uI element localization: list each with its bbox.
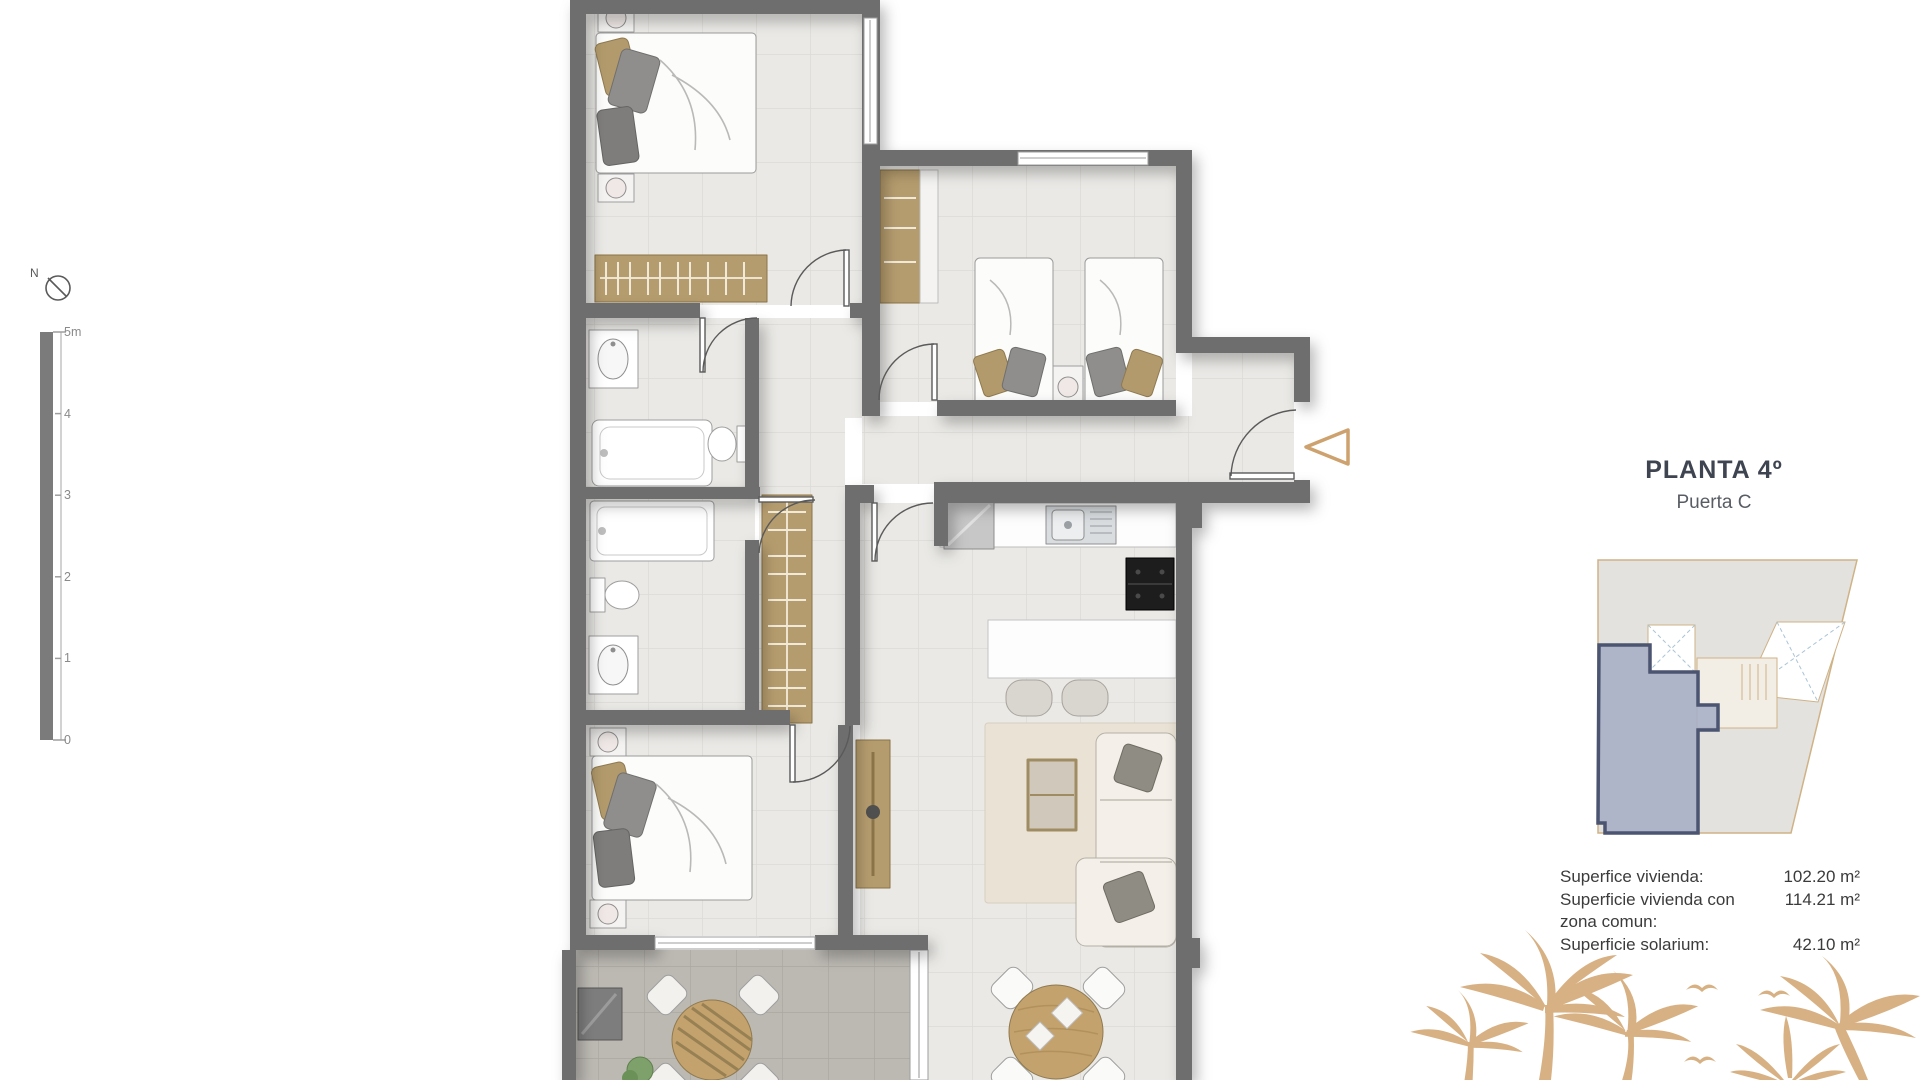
wall (815, 935, 928, 950)
wall (1176, 337, 1310, 353)
faucet-icon (598, 527, 606, 535)
bar-stool (1006, 680, 1052, 716)
entrance-arrow-icon (1306, 430, 1348, 464)
scale-tick-label: 2 (64, 570, 71, 584)
bedroom2-furniture (590, 728, 752, 928)
sideboard-knob (866, 805, 880, 819)
area-value: 102.20 m² (1760, 866, 1860, 888)
title-block: PLANTA 4º Puerta C (1588, 456, 1840, 514)
wall-pillar (1184, 938, 1200, 968)
kitchen-island (988, 620, 1176, 678)
area-row: Superfice vivienda: 102.20 m² (1560, 866, 1862, 888)
area-row: Superficie solarium: 42.10 m² (1560, 934, 1862, 956)
wall (860, 485, 874, 503)
toilet-tank (590, 578, 605, 612)
scale-tick-label: 1 (64, 651, 71, 665)
wall (570, 303, 700, 318)
table-lamp-icon (606, 178, 626, 198)
wall (570, 0, 880, 14)
table-lamp-icon (598, 732, 618, 752)
core-left (1648, 625, 1695, 672)
area-label: Superficie solarium: (1560, 934, 1760, 956)
seagull-icon (1686, 984, 1718, 992)
wall (862, 166, 880, 416)
toilet (605, 581, 639, 609)
wall (570, 487, 760, 499)
area-value: 114.21 m² (1760, 889, 1860, 911)
wall (1176, 150, 1192, 353)
plan-subtitle: Puerta C (1588, 492, 1840, 514)
wall (1294, 353, 1310, 402)
north-label: N (30, 266, 39, 280)
scale-tick-label: 3 (64, 488, 71, 502)
toilet (708, 427, 736, 461)
floor-plan-page: { "colors": { "wall": "#6e6e6e", "accent… (0, 0, 1920, 1080)
wall (838, 725, 853, 950)
window (1018, 152, 1148, 165)
wardrobe-side (920, 170, 938, 303)
bathtub (592, 420, 712, 486)
compass-icon (46, 276, 70, 300)
area-row: Superficie vivienda con zona comun: 114.… (1560, 889, 1862, 933)
wall (570, 710, 790, 725)
area-value: 42.10 m² (1760, 934, 1860, 956)
wall (1176, 497, 1192, 1080)
window (864, 18, 877, 144)
areas-block: Superfice vivienda: 102.20 m² Superficie… (1560, 866, 1862, 957)
faucet-icon (600, 449, 608, 457)
wall (745, 540, 759, 711)
wall (934, 482, 1176, 503)
window (655, 937, 815, 949)
table-lamp-icon (598, 904, 618, 924)
wall (745, 318, 759, 487)
wall (570, 935, 655, 950)
table-lamp-icon (1058, 377, 1078, 397)
scale-tick-label: 5m (64, 325, 81, 339)
shower-bathtub (590, 501, 714, 561)
bar-stool (1062, 680, 1108, 716)
area-label: Superficie vivienda con zona comun: (1560, 889, 1760, 933)
wall (845, 485, 860, 725)
plan-title: PLANTA 4º (1588, 456, 1840, 485)
pillow (596, 106, 639, 166)
seagull-icon (1758, 990, 1790, 998)
upper-hall-floor (759, 318, 862, 418)
pillow (593, 828, 636, 888)
wall (570, 0, 586, 950)
built-in-wardrobe (880, 170, 920, 303)
entry-vestibule-floor (1192, 353, 1294, 483)
scale-tick-label: 0 (64, 733, 71, 747)
wall (850, 303, 880, 318)
area-label: Superfice vivienda: (1560, 866, 1760, 888)
master-bedroom-furniture (594, 4, 767, 302)
site-minimap (1598, 560, 1857, 833)
wall (937, 400, 1176, 416)
scale-bar (40, 332, 66, 740)
palm-tree-icon (1410, 990, 1528, 1080)
terrace-wall (562, 950, 576, 1080)
scale-tick-label: 4 (64, 407, 71, 421)
wall (934, 482, 948, 546)
seagull-icon (1684, 1056, 1716, 1064)
palm-tree-icon (1760, 956, 1920, 1080)
